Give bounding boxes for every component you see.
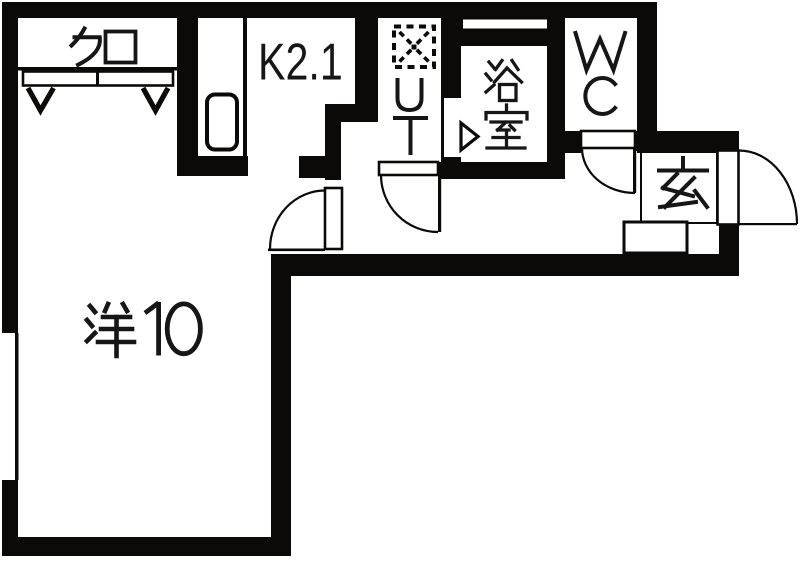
svg-text:K2.1: K2.1 <box>258 33 343 90</box>
